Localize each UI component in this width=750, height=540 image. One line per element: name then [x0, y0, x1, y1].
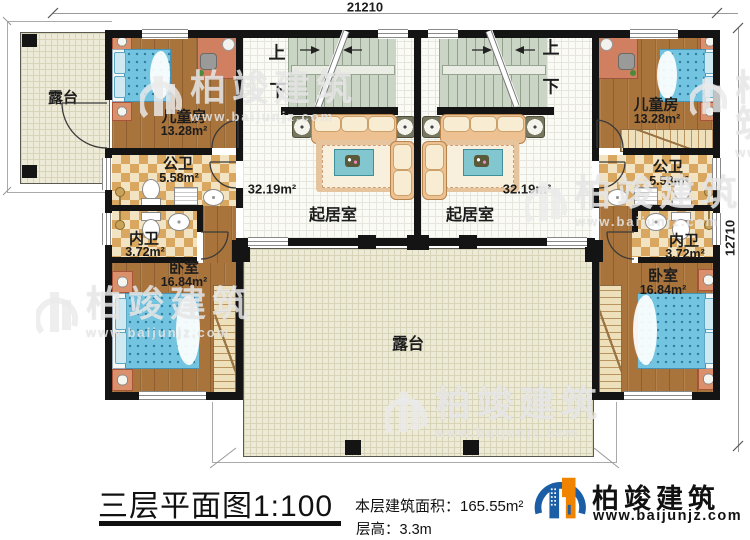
wall-pier	[459, 235, 477, 249]
bed-sheet	[150, 51, 170, 99]
sofa-cushion	[314, 116, 341, 132]
window	[102, 213, 112, 245]
wall-kids-left-bottom	[105, 148, 212, 155]
title-underline	[99, 521, 341, 526]
pillow	[114, 76, 126, 98]
nightstand	[112, 369, 133, 391]
room-label-bedroom-left: 卧室	[169, 261, 199, 276]
wall-left	[105, 30, 112, 100]
room-area-private-bath-left: 3.72m²	[125, 246, 165, 259]
end-table	[292, 116, 312, 138]
sofa-cushion	[425, 170, 444, 196]
window	[378, 29, 408, 39]
right-dimension-line	[738, 28, 739, 452]
stair-up-label-right: 上	[543, 40, 560, 57]
pillow	[115, 298, 127, 330]
sofa-cushion	[368, 116, 395, 132]
room-label-terrace-bottom: 露台	[392, 337, 424, 353]
hall-right-floor	[599, 206, 632, 263]
sink	[607, 189, 628, 206]
terrace-column	[22, 165, 37, 178]
room-label-public-bath-right: 公卫	[653, 160, 683, 175]
stair-down-label-right: 下	[543, 79, 560, 96]
window	[428, 29, 458, 39]
terrace-top-left-floor	[20, 32, 110, 184]
wall-right	[713, 245, 720, 400]
bed-sheet	[176, 295, 200, 365]
wall-bath-right	[592, 188, 599, 208]
nightstand	[112, 271, 133, 293]
window	[630, 29, 678, 39]
desk-lamp	[222, 38, 235, 51]
end-table	[422, 116, 442, 138]
right-dimension-label: 12710	[724, 220, 737, 256]
window	[624, 391, 692, 401]
top-dimension-line	[52, 13, 738, 14]
terrace-column	[345, 440, 361, 455]
plant	[630, 70, 636, 76]
sofa-cushion	[425, 144, 444, 170]
wall-kids-right	[592, 30, 599, 148]
window	[102, 158, 112, 190]
terrace-bottom-eave-bottom	[212, 462, 617, 463]
room-label-living-right: 起居室	[446, 208, 494, 224]
room-label-terrace-top-left: 露台	[48, 91, 78, 106]
floor-height-text: 层高：3.3m	[356, 518, 432, 539]
floor-plan-canvas: 21210 12710	[0, 0, 750, 540]
toilet	[142, 179, 160, 200]
bed-sheet	[657, 51, 677, 99]
terrace-bottom-eave-left	[212, 402, 213, 462]
room-area-kids-left: 13.28m²	[161, 125, 208, 138]
window	[139, 391, 206, 401]
sofa-cushion	[497, 116, 524, 132]
room-label-kids-right: 儿童房	[633, 98, 678, 113]
terrace-column	[22, 34, 37, 47]
window	[142, 29, 188, 39]
company-logo-icon	[533, 470, 591, 530]
wall-bath-divider-right	[632, 205, 720, 211]
pillow	[115, 332, 127, 364]
room-label-bedroom-right: 卧室	[648, 269, 678, 284]
room-label-living-left: 起居室	[309, 208, 357, 224]
room-area-public-bath-left: 5.58m²	[159, 172, 199, 185]
wall-pier	[358, 235, 376, 249]
sliding-door	[248, 237, 288, 247]
staircase-left-stringer	[291, 65, 395, 75]
sink	[645, 213, 667, 231]
room-area-private-bath-right: 3.72m²	[665, 248, 705, 261]
wall-center	[414, 30, 421, 248]
desk-chair	[618, 53, 635, 70]
wardrobe	[599, 285, 622, 397]
pillow	[114, 52, 126, 74]
top-dimension-label: 21210	[347, 1, 383, 14]
room-label-public-bath-left: 公卫	[163, 157, 193, 172]
wall-bath-left	[236, 188, 243, 208]
coffee-table-decor	[345, 155, 360, 167]
room-area-living-right: 32.19m²	[503, 183, 551, 196]
plan-title: 三层平面图1:100	[98, 481, 333, 525]
terrace-bottom-eave-right	[616, 402, 617, 462]
nightstand	[112, 102, 132, 121]
wall-left	[105, 245, 112, 400]
bed-sheet	[633, 295, 657, 365]
wall-bath-right	[592, 148, 599, 161]
room-area-public-bath-right: 5.58m²	[649, 175, 689, 188]
room-area-kids-right: 13.28m²	[634, 113, 681, 126]
stair-down-label-left: 下	[270, 83, 287, 100]
wall-living-right-bottom	[421, 238, 547, 246]
room-area-bedroom-right: 16.84m²	[640, 284, 687, 297]
room-area-bedroom-left: 16.84m²	[161, 276, 208, 289]
room-label-kids-left: 儿童房	[161, 110, 206, 125]
shower-head	[115, 187, 125, 197]
company-url: www.baijunjz.com	[593, 508, 742, 524]
wall-private-bath-left	[197, 211, 203, 232]
shower-head	[115, 220, 125, 230]
wall-bath-divider-left	[105, 205, 203, 211]
watermark-logo-icon	[36, 286, 78, 342]
plant	[198, 70, 204, 76]
sofa-cushion	[443, 116, 470, 132]
sliding-door	[547, 237, 587, 247]
wall-private-bath-right	[632, 211, 638, 232]
sink	[168, 213, 190, 231]
floor-area-text: 本层建筑面积：165.55m²	[355, 495, 523, 516]
sofa-cushion	[393, 170, 412, 196]
wardrobe	[213, 285, 236, 397]
window	[712, 158, 722, 190]
stair-up-label-left: 上	[269, 45, 286, 62]
wall-top	[105, 30, 720, 38]
bathroom-vanity	[634, 187, 658, 207]
end-table	[525, 116, 545, 138]
wall-living-left-bottom	[236, 238, 248, 246]
terrace-column	[463, 440, 479, 455]
sofa-cushion	[341, 116, 368, 132]
wall-bedroom-left-side	[236, 246, 243, 400]
wall-bath-left	[236, 148, 243, 161]
staircase-right-stringer	[442, 65, 546, 75]
wall-right	[713, 30, 720, 158]
desk-chair	[200, 53, 217, 70]
wall-living-left-bottom	[288, 238, 414, 246]
window	[712, 213, 722, 245]
room-area-living-left: 32.19m²	[248, 183, 296, 196]
wall-kids-left	[236, 30, 243, 148]
sofa-cushion	[393, 144, 412, 170]
end-table	[395, 116, 415, 138]
bathroom-vanity	[174, 187, 198, 207]
sofa-cushion	[470, 116, 497, 132]
wall-living-right-bottom	[587, 238, 595, 246]
sink	[203, 189, 224, 206]
wall-bedroom-right-side	[592, 246, 599, 400]
wall-kids-right-bottom	[623, 148, 720, 155]
coffee-table-decor	[474, 155, 489, 167]
desk-lamp	[600, 38, 613, 51]
